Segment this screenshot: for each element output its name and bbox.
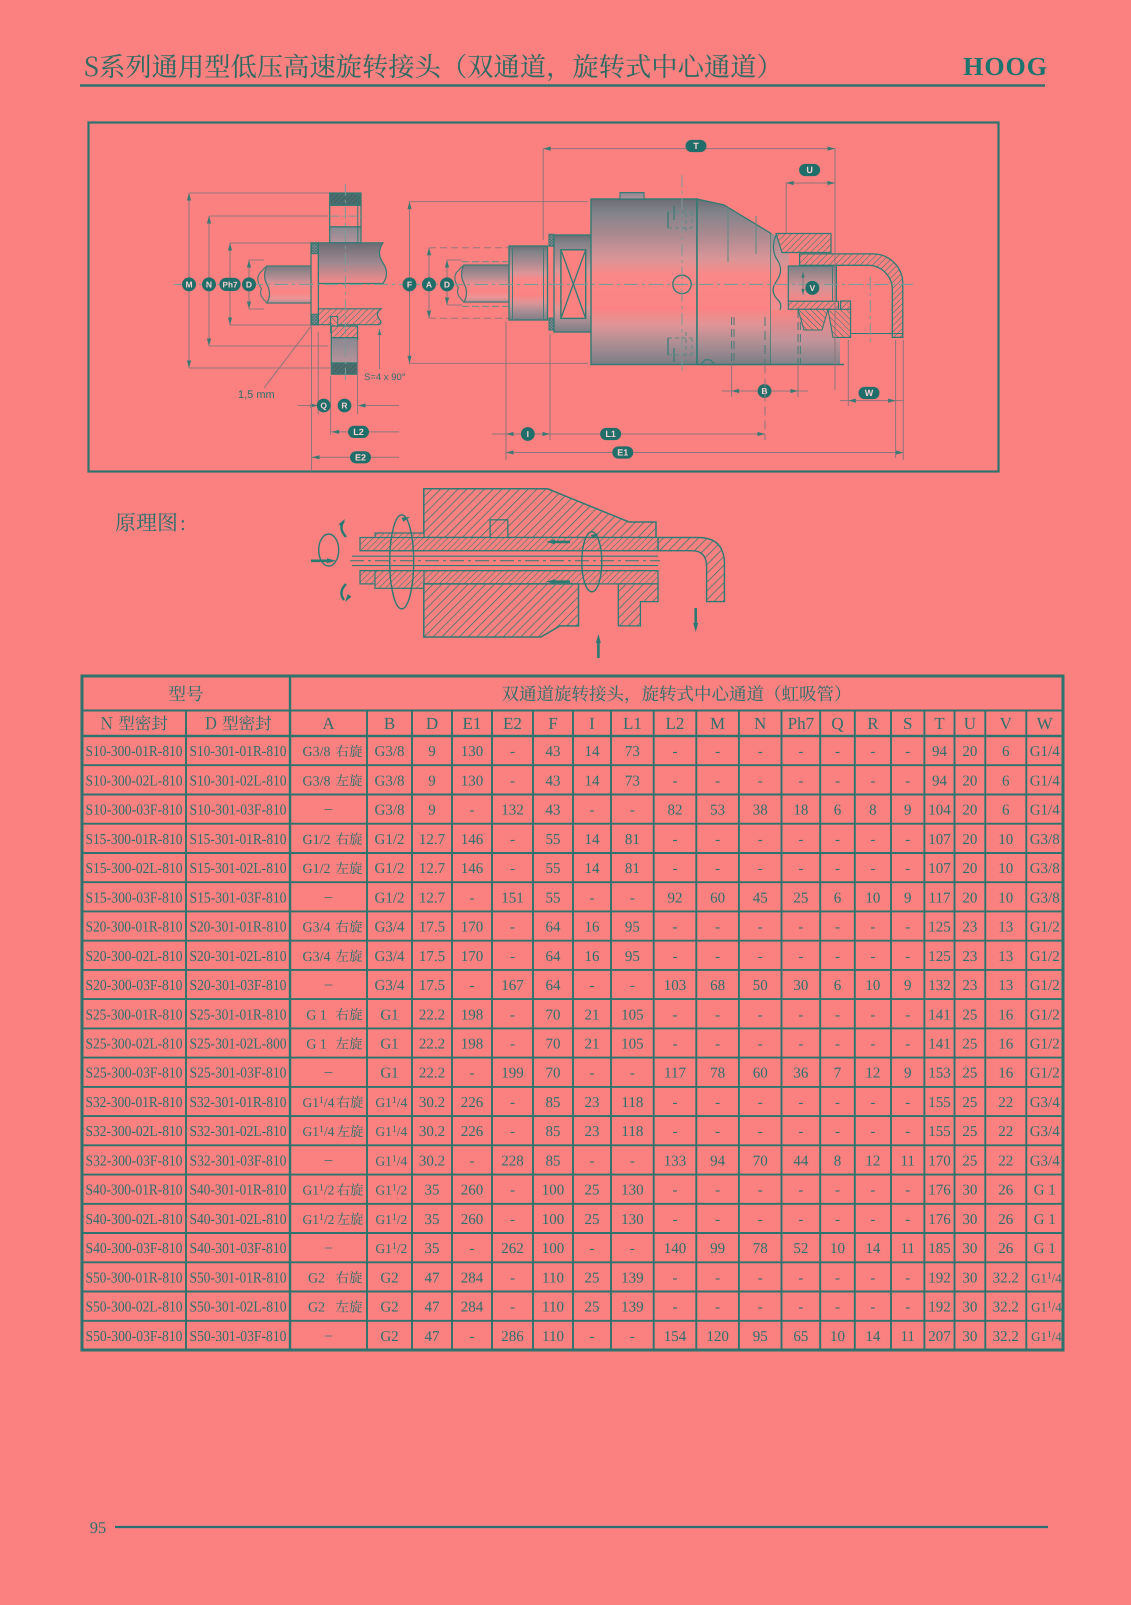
svg-text:-: -	[905, 1124, 910, 1140]
svg-text:-: -	[798, 1037, 803, 1053]
svg-text:100: 100	[542, 1241, 565, 1257]
svg-text:-: -	[510, 1183, 515, 1199]
svg-text:-: -	[590, 890, 595, 906]
svg-text:228: 228	[501, 1154, 524, 1170]
svg-text:S15-300-01R-810: S15-300-01R-810	[86, 831, 183, 848]
svg-text:18: 18	[793, 803, 808, 819]
svg-text:167: 167	[501, 978, 524, 994]
svg-text:130: 130	[461, 773, 484, 789]
svg-text:-: -	[758, 1095, 763, 1111]
svg-text:6: 6	[834, 803, 842, 819]
svg-text:25: 25	[585, 1270, 600, 1286]
svg-text:-: -	[673, 1212, 678, 1228]
svg-text:146: 146	[461, 832, 484, 848]
svg-text:G11/2: G11/2	[375, 1212, 407, 1227]
svg-text:N: N	[206, 280, 212, 290]
svg-text:G3/4: G3/4	[1030, 1095, 1061, 1111]
svg-text:262: 262	[501, 1241, 524, 1257]
svg-text:118: 118	[621, 1095, 643, 1111]
svg-text:120: 120	[706, 1329, 729, 1345]
svg-text:–: –	[324, 977, 333, 993]
svg-text:S32-301-03F-810: S32-301-03F-810	[190, 1153, 287, 1170]
svg-text:-: -	[798, 1212, 803, 1228]
svg-text:155: 155	[928, 1095, 951, 1111]
svg-text:25: 25	[962, 1095, 977, 1111]
svg-text:25: 25	[962, 1007, 977, 1023]
svg-text:9: 9	[904, 978, 912, 994]
svg-text:-: -	[905, 949, 910, 965]
svg-text:94: 94	[710, 1154, 726, 1170]
svg-text:A: A	[322, 714, 335, 733]
svg-text:-: -	[758, 744, 763, 760]
svg-text:-: -	[835, 1095, 840, 1111]
svg-text:20: 20	[962, 773, 977, 789]
svg-text:-: -	[673, 1007, 678, 1023]
svg-text:-: -	[673, 773, 678, 789]
svg-text:D: D	[444, 280, 450, 290]
svg-text:9: 9	[904, 1066, 912, 1082]
svg-text:13: 13	[998, 978, 1013, 994]
svg-text:G11/4: G11/4	[1031, 1300, 1062, 1315]
svg-text:146: 146	[461, 861, 484, 877]
svg-text:25: 25	[585, 1212, 600, 1228]
svg-text:170: 170	[461, 920, 484, 936]
svg-text:17.5: 17.5	[419, 920, 445, 936]
svg-text:12: 12	[865, 1154, 880, 1170]
svg-text:-: -	[510, 1124, 515, 1140]
svg-text:S40-300-03F-810: S40-300-03F-810	[86, 1240, 183, 1257]
svg-text:-: -	[470, 1154, 475, 1170]
svg-text:-: -	[798, 1300, 803, 1316]
svg-text:-: -	[590, 1066, 595, 1082]
svg-text:151: 151	[501, 890, 524, 906]
svg-text:S25-300-02L-810: S25-300-02L-810	[86, 1036, 183, 1053]
svg-text:–: –	[324, 1240, 333, 1256]
svg-text:10: 10	[998, 832, 1013, 848]
svg-text:G2: G2	[380, 1270, 398, 1286]
svg-text:G 1: G 1	[306, 1038, 327, 1053]
svg-text:-: -	[835, 1212, 840, 1228]
svg-text:-: -	[510, 1270, 515, 1286]
svg-text:20: 20	[962, 861, 977, 877]
svg-text:-: -	[673, 832, 678, 848]
svg-text:95: 95	[625, 949, 640, 965]
svg-text:260: 260	[461, 1183, 484, 1199]
svg-text:M: M	[710, 714, 725, 733]
svg-text:99: 99	[710, 1241, 725, 1257]
svg-text:117: 117	[929, 890, 951, 906]
svg-text:-: -	[870, 1007, 875, 1023]
svg-text:S15-300-02L-810: S15-300-02L-810	[86, 860, 183, 877]
svg-text:-: -	[758, 1270, 763, 1286]
svg-text:110: 110	[542, 1270, 564, 1286]
svg-text:G11/4: G11/4	[1031, 1270, 1062, 1285]
svg-text:L1: L1	[623, 714, 642, 733]
svg-text:17.5: 17.5	[419, 949, 445, 965]
svg-text:-: -	[715, 1270, 720, 1286]
svg-text:17.5: 17.5	[419, 978, 445, 994]
svg-text:14: 14	[585, 744, 601, 760]
svg-text:118: 118	[621, 1124, 643, 1140]
svg-text:16: 16	[585, 920, 601, 936]
svg-text:22.2: 22.2	[419, 1007, 445, 1023]
svg-text:139: 139	[621, 1270, 644, 1286]
svg-text:8: 8	[869, 803, 877, 819]
svg-text:47: 47	[425, 1300, 441, 1316]
svg-text:103: 103	[664, 978, 687, 994]
svg-text:G11/4: G11/4	[375, 1154, 407, 1169]
svg-text:Q: Q	[320, 401, 327, 411]
svg-text:-: -	[510, 920, 515, 936]
svg-text:G3/4: G3/4	[303, 921, 331, 936]
svg-text:170: 170	[461, 949, 484, 965]
svg-text:G1/4: G1/4	[1030, 773, 1061, 789]
svg-text:-: -	[758, 1037, 763, 1053]
svg-text:11: 11	[900, 1241, 914, 1257]
svg-text:S20-300-03F-810: S20-300-03F-810	[86, 977, 183, 994]
svg-text:-: -	[715, 861, 720, 877]
svg-text:20: 20	[962, 744, 977, 760]
svg-text:E2: E2	[503, 714, 522, 733]
svg-text:10: 10	[865, 978, 880, 994]
svg-text:-: -	[673, 1124, 678, 1140]
svg-text:V: V	[809, 283, 815, 293]
svg-text:G1: G1	[380, 1007, 398, 1023]
svg-text:-: -	[470, 1329, 475, 1345]
svg-text:141: 141	[928, 1007, 951, 1023]
svg-text:-: -	[798, 832, 803, 848]
svg-text:-: -	[590, 1329, 595, 1345]
svg-text:60: 60	[710, 890, 725, 906]
svg-text:A: A	[426, 280, 432, 290]
svg-text:23: 23	[962, 949, 977, 965]
svg-text:-: -	[510, 832, 515, 848]
svg-text:43: 43	[546, 773, 561, 789]
svg-text:-: -	[715, 773, 720, 789]
svg-text:12.7: 12.7	[419, 861, 446, 877]
svg-text:-: -	[630, 1241, 635, 1257]
svg-text:25: 25	[962, 1037, 977, 1053]
svg-text:185: 185	[928, 1241, 951, 1257]
svg-text:9: 9	[428, 803, 436, 819]
svg-text:G3/8: G3/8	[303, 774, 331, 789]
svg-text:10: 10	[865, 890, 880, 906]
svg-text:43: 43	[546, 803, 561, 819]
svg-text:155: 155	[928, 1124, 951, 1140]
svg-text:G1/2: G1/2	[1030, 978, 1060, 994]
svg-text:-: -	[905, 773, 910, 789]
svg-text:G3/8: G3/8	[375, 744, 405, 760]
svg-text:–: –	[324, 889, 333, 905]
svg-text:47: 47	[425, 1270, 441, 1286]
svg-text:G11/2: G11/2	[375, 1183, 407, 1198]
svg-text:1,5 mm: 1,5 mm	[238, 389, 275, 401]
svg-text:14: 14	[865, 1329, 881, 1345]
svg-text:198: 198	[461, 1037, 484, 1053]
svg-text:-: -	[798, 949, 803, 965]
svg-text:78: 78	[753, 1241, 768, 1257]
svg-text:130: 130	[621, 1212, 644, 1228]
svg-text:53: 53	[710, 803, 725, 819]
svg-text:9: 9	[428, 744, 436, 760]
svg-text:85: 85	[546, 1154, 561, 1170]
svg-text:81: 81	[625, 832, 640, 848]
svg-text:G11/4: G11/4	[375, 1124, 407, 1139]
svg-text:6: 6	[1002, 803, 1010, 819]
svg-text:12.7: 12.7	[419, 832, 446, 848]
svg-text:140: 140	[664, 1241, 687, 1257]
svg-text:G3/4: G3/4	[1030, 1154, 1061, 1170]
svg-text:-: -	[758, 1212, 763, 1228]
svg-text:14: 14	[865, 1241, 881, 1257]
svg-text:110: 110	[542, 1300, 564, 1316]
svg-text:S20-301-02L-810: S20-301-02L-810	[190, 948, 287, 965]
svg-text:G11/4: G11/4	[1031, 1329, 1062, 1344]
svg-text:S50-300-02L-810: S50-300-02L-810	[86, 1299, 183, 1316]
svg-text:-: -	[758, 920, 763, 936]
svg-text:132: 132	[928, 978, 951, 994]
svg-text:25: 25	[962, 1124, 977, 1140]
svg-text:-: -	[835, 1124, 840, 1140]
svg-text:26: 26	[998, 1241, 1014, 1257]
svg-text:81: 81	[625, 861, 640, 877]
svg-text:-: -	[798, 1183, 803, 1199]
svg-text:-: -	[510, 1007, 515, 1023]
svg-text:G11/4: G11/4	[303, 1095, 335, 1110]
svg-text:G 1: G 1	[1034, 1183, 1056, 1199]
svg-text:-: -	[715, 1212, 720, 1228]
svg-text:G 1: G 1	[306, 1008, 327, 1023]
svg-text:S32-301-02L-810: S32-301-02L-810	[190, 1123, 287, 1140]
svg-text:-: -	[470, 1241, 475, 1257]
svg-text:-: -	[905, 744, 910, 760]
svg-text:M: M	[185, 280, 192, 290]
svg-text:S25-301-02L-800: S25-301-02L-800	[190, 1036, 287, 1053]
svg-text:-: -	[510, 949, 515, 965]
svg-text:-: -	[905, 1300, 910, 1316]
svg-text:16: 16	[585, 949, 601, 965]
svg-text:F: F	[407, 280, 412, 290]
svg-text:21: 21	[585, 1037, 600, 1053]
svg-text:10: 10	[998, 861, 1013, 877]
svg-text:-: -	[470, 1066, 475, 1082]
svg-text:10: 10	[830, 1241, 845, 1257]
svg-text:70: 70	[753, 1154, 768, 1170]
svg-text:70: 70	[546, 1037, 561, 1053]
svg-text:16: 16	[998, 1066, 1014, 1082]
svg-text:125: 125	[928, 920, 951, 936]
svg-text:-: -	[630, 803, 635, 819]
svg-text:10: 10	[998, 890, 1013, 906]
svg-text:30.2: 30.2	[419, 1154, 445, 1170]
svg-text:133: 133	[664, 1154, 687, 1170]
svg-text:-: -	[673, 1270, 678, 1286]
svg-text:G1/4: G1/4	[1030, 744, 1061, 760]
svg-text:V: V	[1000, 714, 1013, 733]
svg-text:-: -	[905, 832, 910, 848]
svg-text:S50-300-03F-810: S50-300-03F-810	[86, 1328, 183, 1345]
svg-text:G1/2: G1/2	[303, 833, 331, 848]
svg-text:-: -	[905, 920, 910, 936]
svg-text:-: -	[715, 832, 720, 848]
svg-text:HOOG: HOOG	[963, 52, 1048, 81]
svg-text:100: 100	[542, 1212, 565, 1228]
svg-text:S15-301-01R-810: S15-301-01R-810	[190, 831, 287, 848]
svg-text:S20-300-01R-810: S20-300-01R-810	[86, 919, 183, 936]
svg-text:L2: L2	[666, 714, 685, 733]
svg-text:-: -	[758, 1124, 763, 1140]
svg-text:G11/4: G11/4	[303, 1124, 335, 1139]
svg-text:-: -	[798, 1124, 803, 1140]
svg-text:6: 6	[834, 890, 842, 906]
svg-text:R: R	[341, 401, 347, 411]
svg-text:-: -	[590, 978, 595, 994]
svg-text:260: 260	[461, 1212, 484, 1228]
svg-text:38: 38	[753, 803, 768, 819]
svg-text:107: 107	[928, 861, 951, 877]
svg-text:95: 95	[753, 1329, 768, 1345]
svg-text:94: 94	[932, 744, 948, 760]
svg-text:S50-300-01R-810: S50-300-01R-810	[86, 1269, 183, 1286]
svg-text:154: 154	[664, 1329, 687, 1345]
svg-text:-: -	[630, 1154, 635, 1170]
svg-text:G3/8: G3/8	[1030, 832, 1060, 848]
svg-text:55: 55	[546, 861, 561, 877]
svg-text:82: 82	[668, 803, 683, 819]
svg-text:16: 16	[998, 1037, 1014, 1053]
svg-text:10: 10	[830, 1329, 845, 1345]
svg-text:12.7: 12.7	[419, 890, 446, 906]
svg-text:G1/4: G1/4	[1030, 803, 1061, 819]
svg-text:45: 45	[753, 890, 768, 906]
svg-text:30: 30	[962, 1241, 977, 1257]
svg-text:-: -	[870, 832, 875, 848]
svg-text:-: -	[798, 773, 803, 789]
svg-text:52: 52	[793, 1241, 808, 1257]
svg-text:7: 7	[834, 1066, 842, 1082]
svg-text:35: 35	[425, 1183, 440, 1199]
svg-text:U: U	[806, 165, 813, 175]
svg-text:32.2: 32.2	[993, 1300, 1019, 1316]
svg-text:23: 23	[585, 1124, 600, 1140]
svg-text:226: 226	[461, 1124, 484, 1140]
svg-text:170: 170	[928, 1154, 951, 1170]
svg-text:-: -	[905, 1270, 910, 1286]
svg-text:-: -	[715, 744, 720, 760]
svg-text:13: 13	[998, 920, 1013, 936]
svg-text:107: 107	[928, 832, 951, 848]
svg-text:-: -	[673, 1183, 678, 1199]
svg-text:–: –	[324, 1064, 333, 1080]
svg-text:-: -	[798, 1270, 803, 1286]
svg-text:26: 26	[998, 1183, 1014, 1199]
svg-text:-: -	[905, 1007, 910, 1023]
svg-text:32.2: 32.2	[993, 1270, 1019, 1286]
svg-text:S10-300-02L-810: S10-300-02L-810	[86, 772, 183, 789]
svg-text:G1/2: G1/2	[303, 862, 331, 877]
svg-text:64: 64	[546, 978, 562, 994]
svg-text:L1: L1	[605, 429, 616, 439]
svg-text:73: 73	[625, 744, 640, 760]
svg-text:S20-301-01R-810: S20-301-01R-810	[190, 919, 287, 936]
svg-text:G3/8: G3/8	[375, 803, 405, 819]
svg-text:22: 22	[998, 1154, 1013, 1170]
svg-text:-: -	[715, 1183, 720, 1199]
svg-text:-: -	[835, 1037, 840, 1053]
svg-text:-: -	[673, 949, 678, 965]
svg-text:55: 55	[546, 890, 561, 906]
svg-text:F: F	[548, 714, 557, 733]
svg-text:G3/4: G3/4	[375, 978, 406, 994]
svg-text:G11/2: G11/2	[303, 1183, 335, 1198]
svg-text:153: 153	[928, 1066, 951, 1082]
svg-text:192: 192	[928, 1300, 951, 1316]
svg-text:22: 22	[998, 1095, 1013, 1111]
svg-text:199: 199	[501, 1066, 524, 1082]
svg-text:22: 22	[998, 1124, 1013, 1140]
svg-text:-: -	[510, 1037, 515, 1053]
svg-text:11: 11	[900, 1329, 914, 1345]
svg-text:35: 35	[425, 1212, 440, 1228]
svg-text:55: 55	[546, 832, 561, 848]
svg-text:-: -	[835, 1300, 840, 1316]
svg-text:30: 30	[793, 978, 808, 994]
svg-text:I: I	[527, 429, 529, 439]
svg-text:S15-301-02L-810: S15-301-02L-810	[190, 860, 287, 877]
svg-text:–: –	[324, 1327, 333, 1343]
svg-text:D: D	[426, 714, 438, 733]
svg-text:G1/2: G1/2	[1030, 1037, 1060, 1053]
svg-text:132: 132	[501, 803, 524, 819]
svg-text:–: –	[324, 1152, 333, 1168]
svg-text:G11/2: G11/2	[375, 1241, 407, 1256]
svg-text:14: 14	[585, 832, 601, 848]
svg-text:73: 73	[625, 773, 640, 789]
svg-text:S40-300-01R-810: S40-300-01R-810	[86, 1182, 183, 1199]
svg-text:G 1: G 1	[1034, 1241, 1056, 1257]
svg-text:-: -	[835, 949, 840, 965]
svg-text:-: -	[715, 1124, 720, 1140]
svg-text:S10-300-01R-810: S10-300-01R-810	[86, 743, 183, 760]
svg-text:S20-301-03F-810: S20-301-03F-810	[190, 977, 287, 994]
svg-text:92: 92	[668, 890, 683, 906]
svg-text:-: -	[870, 949, 875, 965]
svg-text:S40-301-01R-810: S40-301-01R-810	[190, 1182, 287, 1199]
svg-text:G3/4: G3/4	[375, 949, 406, 965]
svg-text:-: -	[798, 1007, 803, 1023]
svg-text:S40-301-03F-810: S40-301-03F-810	[190, 1240, 287, 1257]
svg-text:S20-300-02L-810: S20-300-02L-810	[86, 948, 183, 965]
svg-text:94: 94	[932, 773, 948, 789]
svg-text:-: -	[470, 890, 475, 906]
svg-text:284: 284	[461, 1300, 484, 1316]
svg-text:30: 30	[962, 1329, 977, 1345]
svg-text:G2: G2	[380, 1300, 398, 1316]
svg-text:-: -	[510, 1212, 515, 1228]
svg-text:-: -	[470, 803, 475, 819]
svg-text:-: -	[835, 1270, 840, 1286]
svg-text:104: 104	[928, 803, 951, 819]
svg-text:G1/2: G1/2	[1030, 949, 1060, 965]
svg-text:-: -	[798, 1095, 803, 1111]
svg-text:14: 14	[585, 861, 601, 877]
svg-text:S25-301-01R-810: S25-301-01R-810	[190, 1006, 287, 1023]
svg-text:30: 30	[962, 1300, 977, 1316]
svg-text:G3/4: G3/4	[1030, 1124, 1061, 1140]
svg-text:-: -	[673, 1300, 678, 1316]
svg-text:S32-300-01R-810: S32-300-01R-810	[86, 1094, 183, 1111]
svg-text:U: U	[964, 714, 976, 733]
